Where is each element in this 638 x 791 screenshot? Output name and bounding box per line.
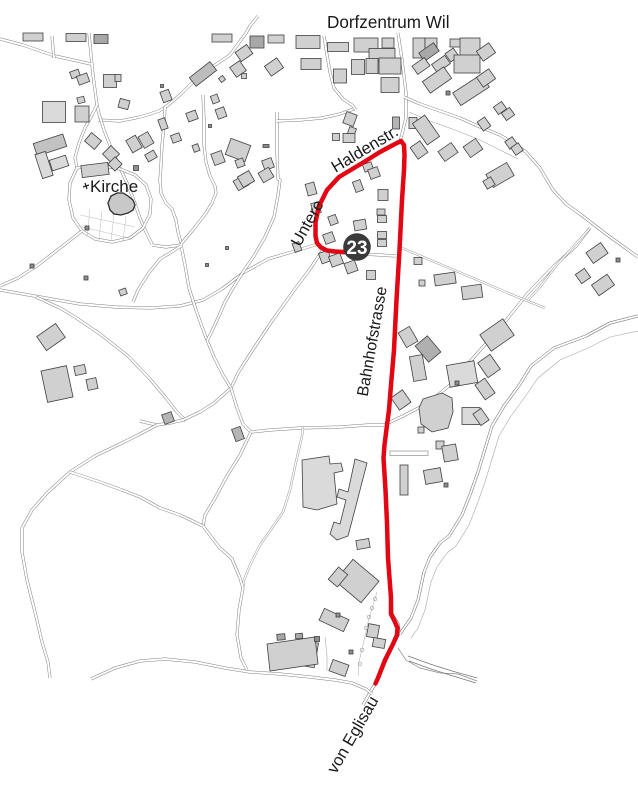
svg-text:23: 23 <box>346 238 367 259</box>
svg-text:Kirche: Kirche <box>90 177 138 196</box>
svg-text:Dorfzentrum Wil: Dorfzentrum Wil <box>327 13 450 32</box>
